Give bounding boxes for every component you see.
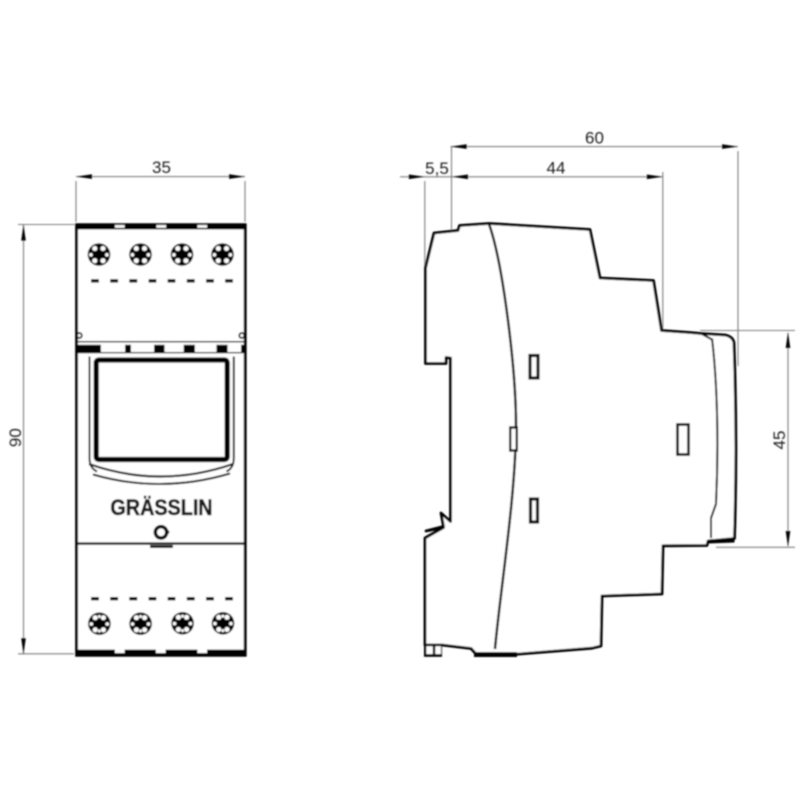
svg-text:45: 45 bbox=[770, 431, 789, 450]
svg-text:5,5: 5,5 bbox=[425, 159, 449, 178]
svg-text:60: 60 bbox=[585, 129, 604, 148]
svg-text:35: 35 bbox=[152, 158, 171, 177]
svg-text:90: 90 bbox=[6, 428, 25, 447]
svg-text:44: 44 bbox=[547, 159, 566, 178]
svg-text:GRÄSSLIN: GRÄSSLIN bbox=[110, 496, 212, 520]
